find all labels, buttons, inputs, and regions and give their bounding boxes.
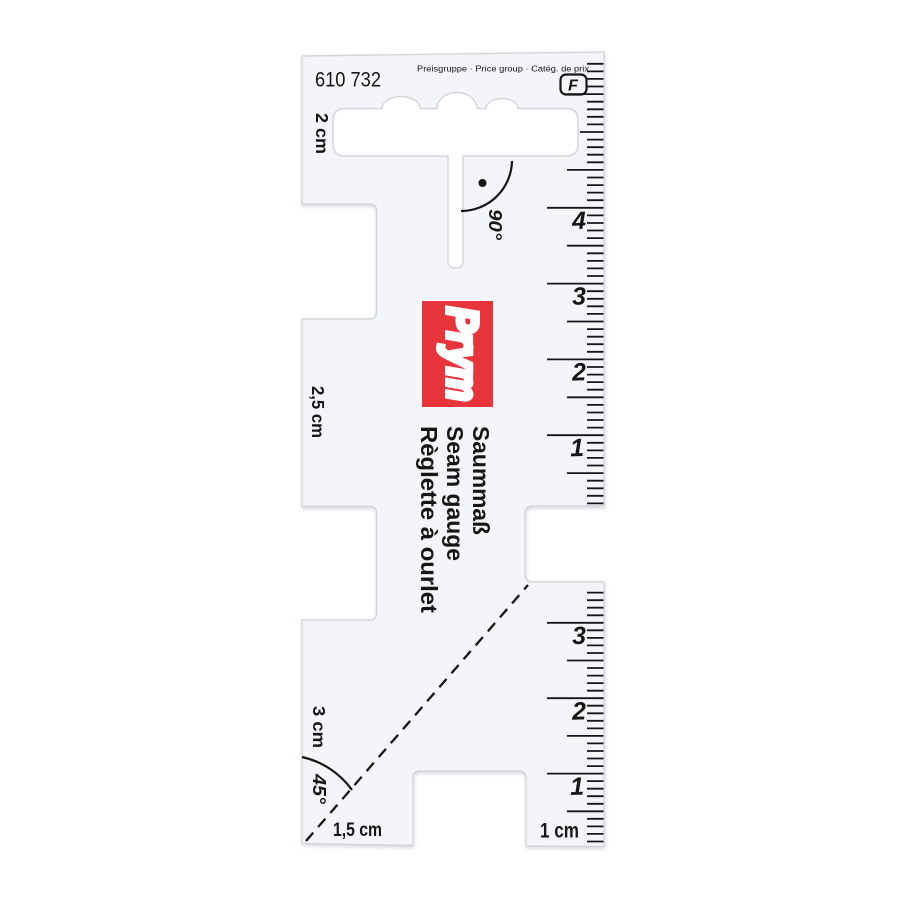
svg-text:1: 1 xyxy=(570,434,585,462)
svg-text:Saummaß: Saummaß xyxy=(468,426,494,535)
svg-text:Prym: Prym xyxy=(438,307,487,401)
svg-text:90°: 90° xyxy=(485,209,506,241)
svg-text:3: 3 xyxy=(572,622,587,650)
svg-text:Preisgruppe · Price group · Ca: Preisgruppe · Price group · Catég. de pr… xyxy=(417,65,589,74)
svg-text:F: F xyxy=(568,78,579,95)
svg-text:2: 2 xyxy=(571,697,587,726)
svg-text:2,5 cm: 2,5 cm xyxy=(308,386,328,438)
svg-text:1 cm: 1 cm xyxy=(540,820,579,843)
svg-text:1,5 cm: 1,5 cm xyxy=(333,819,382,841)
svg-text:2 cm: 2 cm xyxy=(312,113,332,154)
svg-text:Règlette à ourlet: Règlette à ourlet xyxy=(416,426,442,613)
svg-text:3 cm: 3 cm xyxy=(309,706,329,748)
svg-text:3: 3 xyxy=(572,282,587,310)
svg-text:2: 2 xyxy=(571,358,587,387)
svg-text:45°: 45° xyxy=(309,773,330,805)
svg-text:610 732: 610 732 xyxy=(315,69,381,92)
svg-text:1: 1 xyxy=(570,773,585,801)
svg-text:4: 4 xyxy=(571,207,587,236)
svg-text:Seam gauge: Seam gauge xyxy=(442,426,468,561)
